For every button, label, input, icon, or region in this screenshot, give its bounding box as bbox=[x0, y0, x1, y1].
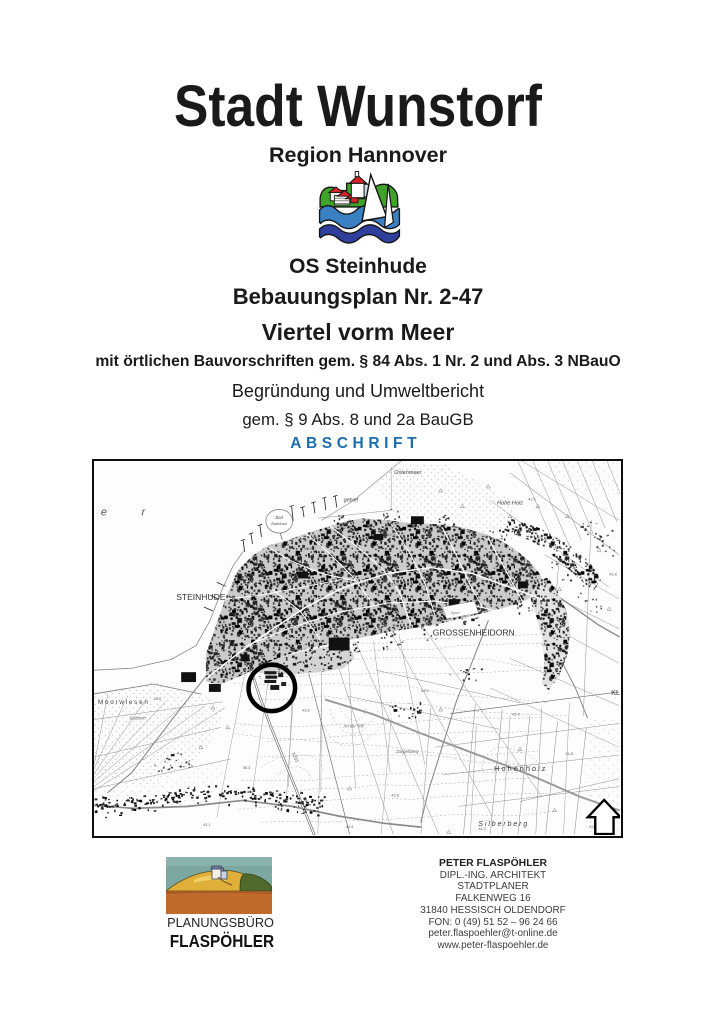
svg-text:KLE: KLE bbox=[611, 688, 620, 697]
svg-text:STEINHUDE: STEINHUDE bbox=[176, 592, 226, 602]
svg-text:M o o r w i e s e n: M o o r w i e s e n bbox=[98, 699, 148, 706]
svg-text:41.5: 41.5 bbox=[528, 496, 536, 501]
svg-text:44.6: 44.6 bbox=[421, 688, 429, 693]
svg-text:Hohe Holz: Hohe Holz bbox=[497, 500, 523, 506]
svg-text:43.6: 43.6 bbox=[391, 793, 399, 798]
svg-text:45.6: 45.6 bbox=[512, 712, 520, 717]
svg-text:GROSSENHEIDORN: GROSSENHEIDORN bbox=[433, 628, 515, 638]
svg-text:Sport: Sport bbox=[451, 611, 461, 615]
svg-text:H o h e n h o l z: H o h e n h o l z bbox=[494, 764, 546, 773]
svg-text:K331: K331 bbox=[291, 752, 300, 764]
svg-text:gebiet: gebiet bbox=[344, 497, 359, 503]
svg-text:38.4: 38.4 bbox=[243, 765, 251, 770]
svg-text:40.3: 40.3 bbox=[425, 615, 433, 620]
svg-text:e: e bbox=[101, 506, 107, 518]
svg-text:Zangenberg: Zangenberg bbox=[395, 749, 419, 754]
svg-text:41.3: 41.3 bbox=[391, 581, 399, 586]
svg-text:44.2: 44.2 bbox=[478, 826, 486, 831]
svg-text:r: r bbox=[142, 506, 146, 518]
svg-text:An der Trift: An der Trift bbox=[343, 723, 365, 728]
svg-text:Suttisch: Suttisch bbox=[130, 716, 147, 721]
svg-text:38.6: 38.6 bbox=[153, 696, 161, 701]
svg-text:Badeinsel: Badeinsel bbox=[271, 522, 287, 526]
svg-text:44.4: 44.4 bbox=[346, 824, 354, 829]
svg-text:43.1: 43.1 bbox=[203, 822, 211, 827]
svg-text:Ostenmeer: Ostenmeer bbox=[394, 470, 422, 476]
svg-text:51.8: 51.8 bbox=[566, 751, 574, 756]
svg-text:50.8: 50.8 bbox=[304, 546, 312, 551]
svg-text:39.8: 39.8 bbox=[387, 532, 395, 537]
svg-text:Bad: Bad bbox=[276, 515, 284, 520]
svg-text:43.6: 43.6 bbox=[302, 708, 310, 713]
svg-text:43.8: 43.8 bbox=[609, 571, 617, 576]
